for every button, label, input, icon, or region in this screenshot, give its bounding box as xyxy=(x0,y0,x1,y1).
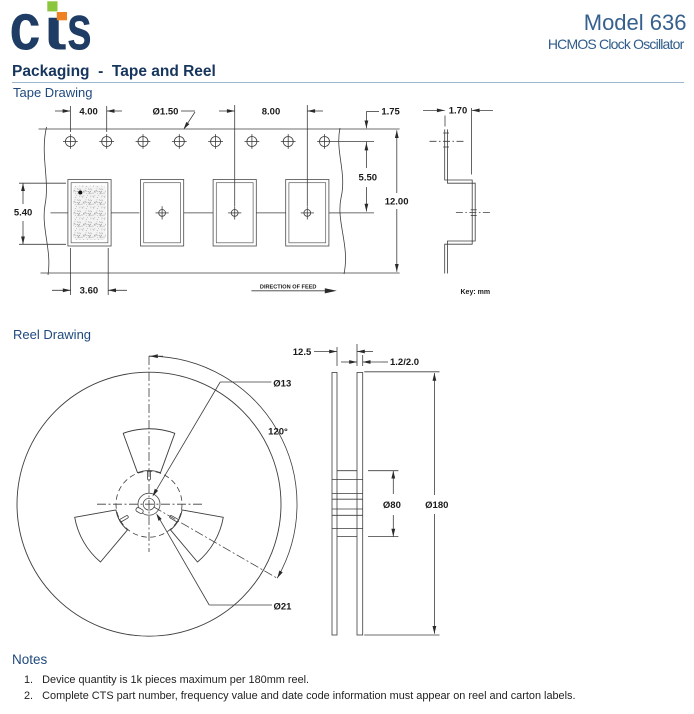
svg-text:DIRECTION OF FEED: DIRECTION OF FEED xyxy=(260,285,317,291)
svg-text:8.00: 8.00 xyxy=(262,106,281,117)
svg-text:Ø80: Ø80 xyxy=(383,500,401,511)
svg-text:4.00: 4.00 xyxy=(79,106,98,117)
svg-text:Ø21: Ø21 xyxy=(274,601,293,612)
svg-text:12.00: 12.00 xyxy=(385,196,409,207)
svg-text:120°: 120° xyxy=(268,427,288,438)
svg-text:Key: mm: Key: mm xyxy=(461,289,491,296)
svg-text:5.50: 5.50 xyxy=(359,172,378,183)
svg-text:1.75: 1.75 xyxy=(381,107,400,118)
svg-text:12.5: 12.5 xyxy=(293,347,312,358)
svg-text:Ø180: Ø180 xyxy=(425,500,448,511)
svg-text:5.40: 5.40 xyxy=(14,208,33,219)
svg-text:3.60: 3.60 xyxy=(80,286,99,297)
svg-text:Ø1.50: Ø1.50 xyxy=(153,106,179,117)
svg-text:1.2/2.0: 1.2/2.0 xyxy=(390,357,419,368)
svg-text:Ø13: Ø13 xyxy=(273,378,291,389)
svg-text:1.70: 1.70 xyxy=(449,106,468,117)
